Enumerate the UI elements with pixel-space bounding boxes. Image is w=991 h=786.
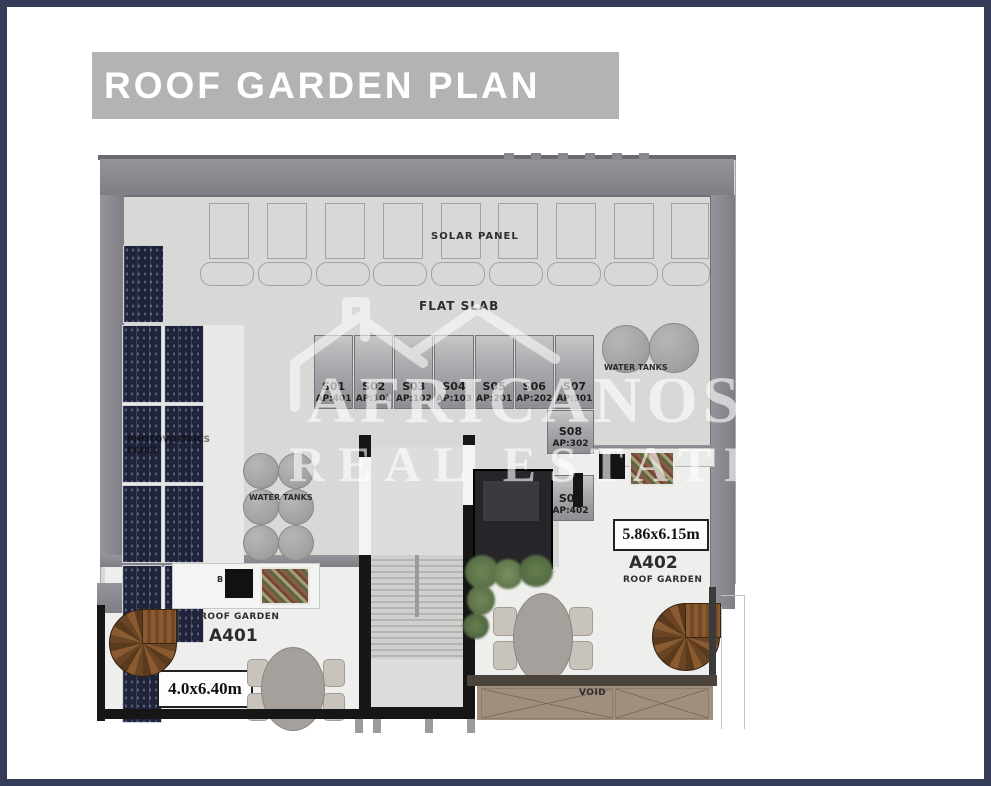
unit-id: S07 (563, 381, 586, 393)
spiral-staircase-landing (142, 609, 177, 644)
solar-mount-outline (431, 262, 485, 286)
unit-id: S05 (483, 381, 506, 393)
solar-mount-outline (258, 262, 312, 286)
column-post (425, 719, 433, 733)
planter-a401 (260, 567, 310, 605)
unit-apartment: AP:102 (396, 393, 432, 405)
column-post (467, 719, 475, 733)
unit-id: S08 (559, 426, 582, 438)
pv-panel (122, 325, 162, 403)
solar-mount-outline (604, 262, 658, 286)
a401-id-label: A401 (209, 626, 258, 646)
storage-unit-s07: S07 AP:301 (555, 335, 594, 409)
solar-mount-outline (373, 262, 427, 286)
wall-segment (573, 473, 583, 507)
storage-unit-s06: S06 AP:202 (515, 335, 554, 409)
water-tank (278, 525, 314, 561)
wall-a401-left (97, 605, 105, 721)
solar-mount-outline (547, 262, 601, 286)
a402-type-label: ROOF GARDEN (623, 575, 702, 585)
roof-garden-plan-page: ROOF GARDEN PLAN SOLAR PANEL FLAT SLAB (0, 0, 991, 786)
void-label: VOID (579, 688, 606, 698)
stairwell-door-gap (359, 457, 371, 555)
planter-a402 (629, 451, 675, 486)
roof-vent (558, 153, 568, 160)
solar-panel-outline (671, 203, 709, 259)
void-hatch (615, 688, 709, 719)
unit-apartment: AP:101 (356, 393, 392, 405)
storage-unit-s01: S01 AP:401 (314, 335, 353, 409)
solar-panel-outline (556, 203, 596, 259)
roof-vent (612, 153, 622, 160)
void-edge-beam (467, 675, 717, 686)
storage-unit-s05: S05 AP:201 (475, 335, 514, 409)
storage-unit-s09: S09 AP:402 (547, 475, 594, 521)
wall-right (710, 195, 735, 609)
roof-vent (639, 153, 649, 160)
railing-line (721, 595, 745, 596)
stairwell-wall-bottom (359, 707, 475, 719)
unit-apartment: AP:402 (553, 505, 589, 517)
a402-dimensions-box: 5.86x6.15m (613, 519, 709, 551)
plant (463, 613, 489, 639)
pv-panel (122, 485, 162, 563)
flat-slab-label: FLAT SLAB (419, 299, 499, 313)
unit-id: S06 (523, 381, 546, 393)
storage-unit-s08: S08 AP:302 (547, 410, 594, 454)
dining-table-a402 (513, 593, 573, 683)
a401-type-label: ROOF GARDEN (200, 612, 279, 622)
elevator-car (483, 481, 539, 521)
unit-id: S04 (442, 381, 465, 393)
storage-unit-s04: S04 AP:103 (434, 335, 473, 409)
unit-id: S02 (362, 381, 385, 393)
unit-apartment: AP:302 (553, 438, 589, 450)
chair (323, 659, 345, 687)
unit-id: S01 (322, 381, 345, 393)
bbq-grill-a402 (599, 454, 625, 479)
a401-dimensions-box: 4.0x6.40m (157, 670, 253, 708)
unit-apartment: AP:202 (516, 393, 552, 405)
solar-panel-outline (614, 203, 654, 259)
solar-mount-outline (316, 262, 370, 286)
solar-panel-outline (209, 203, 249, 259)
solar-panel-outline (267, 203, 307, 259)
railing-line (721, 607, 722, 729)
water-tank (278, 453, 314, 489)
railing-line (744, 595, 745, 729)
column-post (355, 719, 363, 733)
unit-apartment: AP:401 (316, 393, 352, 405)
solar-mount-outline (662, 262, 710, 286)
pv-panel (164, 485, 204, 563)
photovoltaic-label: PHOTOVOLTAICS PANEL (127, 435, 237, 457)
water-tanks-right-label: WATER TANKS (604, 363, 668, 372)
a402-dimensions: 5.86x6.15m (622, 526, 699, 544)
plant (467, 585, 495, 615)
storage-unit-s02: S02 AP:101 (354, 335, 393, 409)
pv-panel (164, 325, 204, 403)
wall-top (100, 159, 734, 197)
wall-a402-right (709, 587, 716, 683)
stair-stringer (415, 555, 419, 617)
water-tank (243, 525, 279, 561)
water-tank (243, 453, 279, 489)
column-post (373, 719, 381, 733)
solar-mount-outline (200, 262, 254, 286)
a402-id-label: A402 (629, 553, 678, 573)
title-banner: ROOF GARDEN PLAN (92, 52, 619, 119)
unit-id: S03 (402, 381, 425, 393)
solar-mount-outline (489, 262, 543, 286)
unit-apartment: AP:103 (436, 393, 472, 405)
plant (519, 555, 553, 587)
pv-panel (123, 245, 164, 323)
roof-vent (585, 153, 595, 160)
solar-panel-label: SOLAR PANEL (431, 231, 519, 242)
roof-vent (504, 153, 514, 160)
a401-dimensions: 4.0x6.40m (168, 679, 242, 699)
storage-unit-s03: S03 AP:102 (394, 335, 433, 409)
wall-left (100, 195, 124, 567)
solar-panel-outline (325, 203, 365, 259)
storage-units-row: S01 AP:401 S02 AP:101 S03 AP:102 S04 AP:… (314, 335, 594, 409)
unit-apartment: AP:301 (556, 393, 592, 405)
solar-panel-outline (383, 203, 423, 259)
page-title: ROOF GARDEN PLAN (92, 65, 541, 107)
roof-vent (531, 153, 541, 160)
bbq-grill-a401 (225, 569, 253, 598)
unit-apartment: AP:201 (476, 393, 512, 405)
elevator-shaft (473, 469, 553, 569)
bbq-label: B (217, 575, 223, 584)
wall-a401-bottom (100, 709, 362, 719)
water-tanks-left-label: WATER TANKS (249, 493, 313, 502)
